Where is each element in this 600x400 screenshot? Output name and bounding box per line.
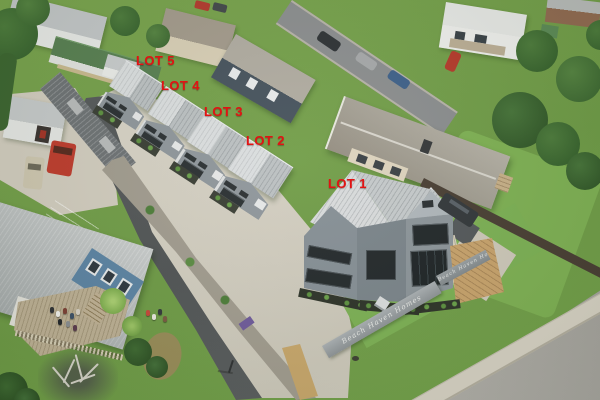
person — [56, 311, 60, 317]
window — [85, 258, 103, 276]
person — [63, 308, 67, 314]
windshield — [53, 145, 73, 155]
person — [76, 309, 80, 315]
window — [100, 268, 118, 286]
person — [146, 310, 150, 316]
window — [422, 200, 434, 208]
lot-label-1: LOT 1 — [328, 176, 367, 191]
window — [245, 77, 258, 90]
beige-wagon — [23, 156, 45, 190]
white-panel — [131, 112, 142, 123]
bare-tree — [38, 348, 118, 400]
lot-label-3: LOT 3 — [204, 104, 243, 119]
person — [66, 321, 70, 327]
tree-branch — [75, 354, 84, 380]
roof-vent — [67, 97, 84, 115]
window — [390, 166, 402, 177]
window — [366, 250, 396, 280]
aerial-photo-scene: Beach Haven Homes Beach Haven Homes — [0, 0, 600, 400]
parked-car-red — [194, 0, 210, 11]
person — [163, 316, 167, 322]
window — [266, 89, 279, 102]
manhole-cover — [352, 356, 359, 361]
tree-branch — [70, 374, 95, 385]
tree — [110, 6, 140, 36]
parked-car-red — [444, 50, 462, 73]
window — [412, 223, 449, 246]
tree — [516, 30, 558, 72]
window — [373, 160, 385, 171]
palm-plant — [122, 316, 142, 336]
shrub — [146, 356, 168, 378]
person — [152, 314, 156, 320]
person — [50, 307, 54, 313]
tree — [556, 56, 600, 102]
person — [58, 319, 62, 325]
white-panel — [171, 140, 182, 151]
person — [70, 313, 74, 319]
tree — [146, 24, 170, 48]
windshield — [28, 163, 42, 170]
person — [158, 309, 162, 315]
tree — [566, 152, 600, 190]
person — [73, 325, 77, 331]
lot-label-4: LOT 4 — [161, 78, 200, 93]
lot-label-5: LOT 5 — [136, 53, 175, 68]
chimney — [419, 139, 432, 154]
roof-vent — [99, 136, 116, 154]
parked-car-dark — [212, 2, 228, 13]
window — [228, 67, 241, 80]
palm-plant — [100, 288, 126, 314]
white-panel — [254, 199, 267, 211]
window — [356, 154, 368, 165]
lot-label-2: LOT 2 — [246, 133, 285, 148]
